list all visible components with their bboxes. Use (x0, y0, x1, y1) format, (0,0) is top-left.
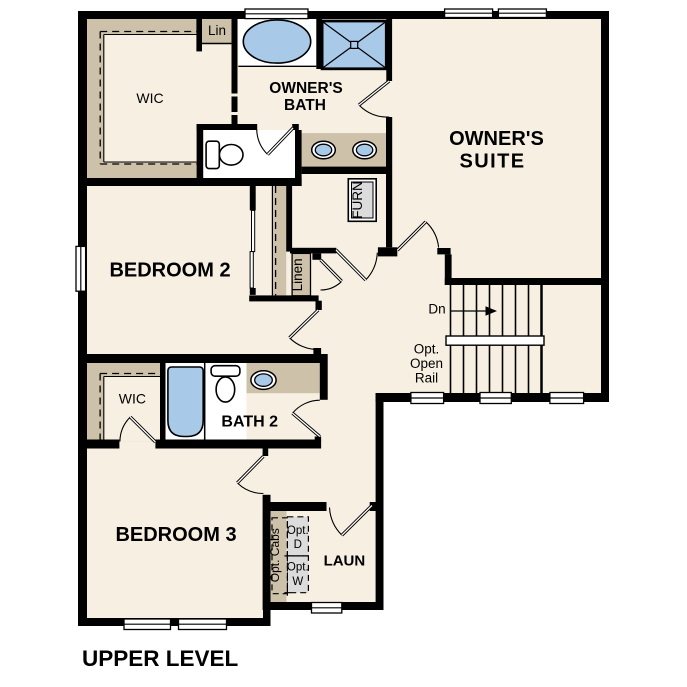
svg-text:Open: Open (410, 356, 443, 371)
svg-text:BATH 2: BATH 2 (221, 414, 278, 431)
svg-text:LAUN: LAUN (324, 553, 366, 570)
svg-text:Linen: Linen (290, 258, 305, 291)
svg-text:OWNER'S: OWNER'S (269, 80, 342, 97)
svg-text:SUITE: SUITE (460, 151, 526, 173)
svg-text:WIC: WIC (136, 90, 163, 106)
svg-text:WIC: WIC (119, 391, 146, 407)
svg-text:Opt.: Opt. (287, 562, 309, 574)
svg-text:W: W (292, 576, 303, 588)
svg-text:OWNER'S: OWNER'S (449, 128, 544, 150)
svg-text:D: D (294, 539, 302, 551)
svg-text:Lin: Lin (208, 23, 226, 38)
svg-text:Opt.: Opt. (414, 342, 440, 357)
svg-text:BEDROOM 2: BEDROOM 2 (109, 260, 230, 282)
svg-text:UPPER LEVEL: UPPER LEVEL (82, 646, 239, 671)
svg-text:FURN: FURN (350, 181, 365, 219)
svg-text:BATH: BATH (284, 97, 326, 114)
svg-text:Rail: Rail (415, 371, 438, 386)
svg-text:BEDROOM 3: BEDROOM 3 (115, 524, 236, 546)
svg-text:Dn: Dn (428, 302, 445, 317)
svg-text:Opt. Cabs: Opt. Cabs (268, 528, 282, 582)
svg-text:Opt.: Opt. (287, 525, 309, 537)
